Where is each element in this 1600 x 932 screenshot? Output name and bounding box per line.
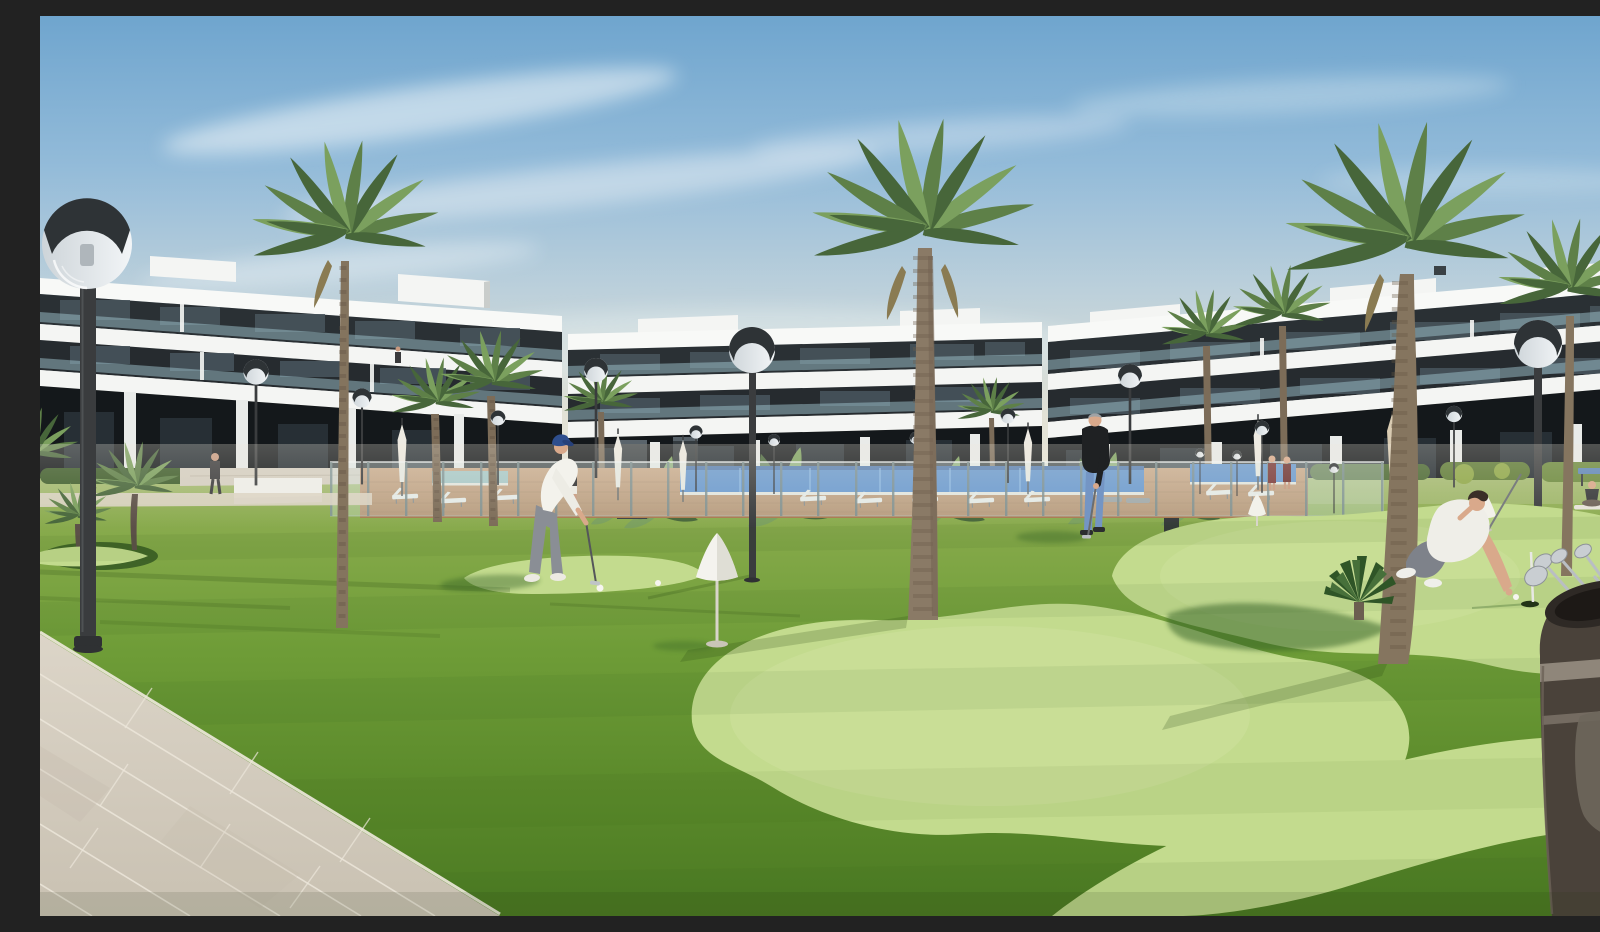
balcony-figure [395,347,401,364]
bottom-vignette [40,892,1600,916]
golf-ball [597,585,604,592]
golf-ball [655,580,661,586]
scene [40,16,1600,916]
